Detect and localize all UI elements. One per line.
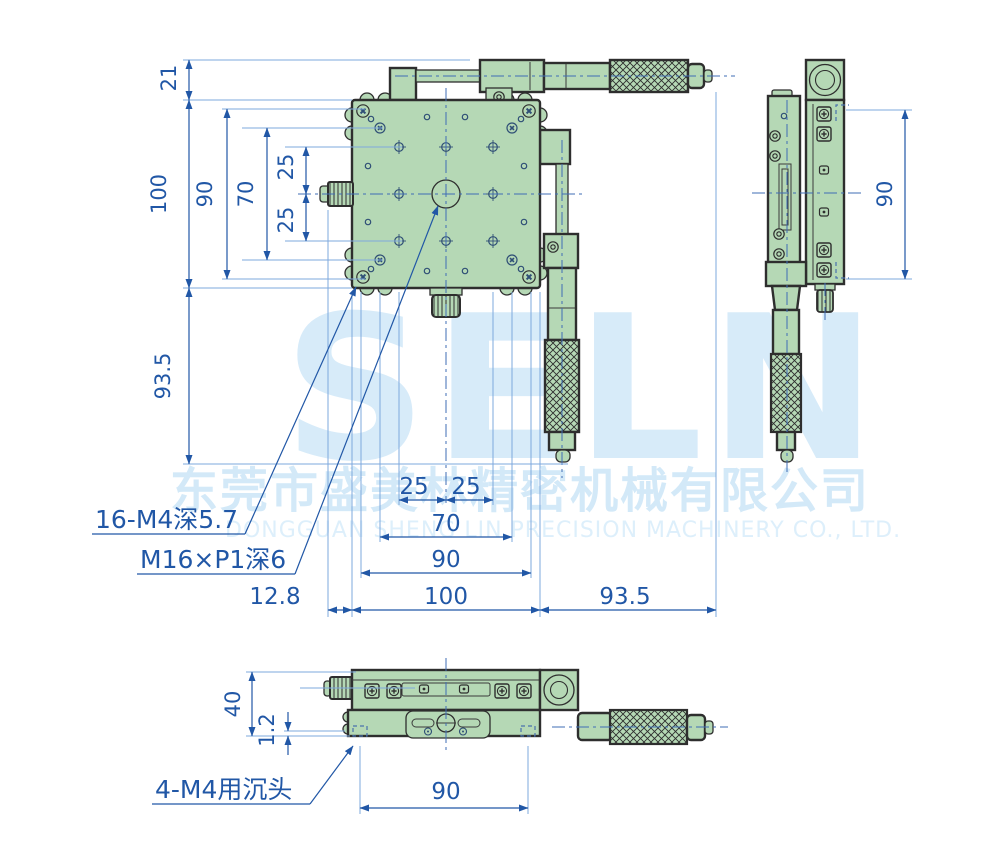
dim-label-25a-bottom: 25 [399, 474, 428, 500]
watermark-company-cn: 东莞市盛美林精密机械有限公司 [170, 463, 870, 519]
dim-label-100-left: 100 [147, 174, 171, 214]
side-top-knob [806, 60, 844, 100]
dim-label-90-front: 90 [431, 779, 460, 805]
front-slot-plate [406, 711, 490, 738]
leader-counterbore [310, 746, 353, 804]
dim-label-90-bottom: 90 [431, 547, 460, 573]
dim-label-93-5-left: 93.5 [151, 353, 175, 400]
drawing-canvas: SELN 东莞市盛美林精密机械有限公司 DONGGUAN SHENG LIN P… [0, 0, 1001, 853]
callout-labels: 16-M4深5.7 M16×P1深6 4-M4用沉头 [95, 505, 292, 804]
dim-label-25b-bottom: 25 [451, 474, 480, 500]
dim-label-90-left: 90 [193, 181, 217, 208]
dim-label-21: 21 [157, 65, 181, 92]
drawing-page: SELN 东莞市盛美林精密机械有限公司 DONGGUAN SHENG LIN P… [0, 0, 1001, 853]
dim-label-40: 40 [221, 691, 245, 718]
dim-label-93-5-bottom: 93.5 [599, 584, 650, 610]
front-view [324, 670, 713, 744]
callout-threaded-holes: 16-M4深5.7 [95, 505, 238, 534]
dim-label-100-bottom: 100 [424, 584, 468, 610]
callout-center-thread: M16×P1深6 [140, 545, 286, 574]
dim-label-90-side: 90 [873, 181, 897, 208]
front-right-micrometer [540, 670, 713, 744]
dim-label-12-8: 12.8 [249, 584, 300, 610]
callout-counterbore: 4-M4用沉头 [155, 775, 292, 804]
dim-label-70-bottom: 70 [431, 511, 460, 537]
dim-label-25b-left: 25 [274, 207, 298, 234]
dim-label-25a-left: 25 [274, 154, 298, 181]
dim-label-1-2: 1.2 [255, 713, 279, 746]
watermark-company-en: DONGGUAN SHENG LIN PRECISION MACHINERY C… [225, 518, 901, 543]
dim-label-70-left: 70 [234, 181, 258, 208]
side-lower-micrometer [766, 262, 806, 462]
